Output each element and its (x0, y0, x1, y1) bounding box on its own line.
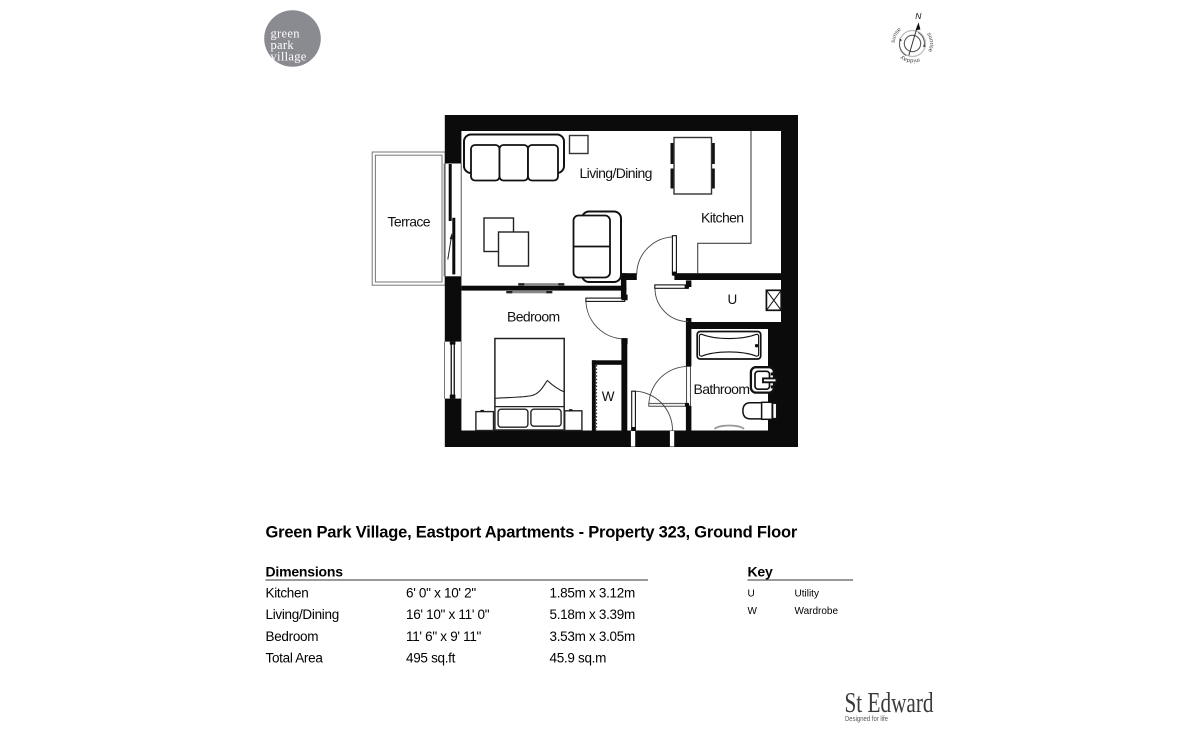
svg-text:11' 6" x 9' 11": 11' 6" x 9' 11" (406, 629, 482, 644)
svg-text:1.85m x 3.12m: 1.85m x 3.12m (550, 586, 635, 601)
svg-text:U: U (728, 292, 738, 307)
svg-text:Living/Dining: Living/Dining (266, 607, 339, 622)
svg-text:Dimensions: Dimensions (266, 563, 344, 579)
svg-text:45.9 sq.m: 45.9 sq.m (550, 651, 607, 666)
svg-text:W: W (748, 606, 758, 617)
svg-text:Living/Dining: Living/Dining (580, 165, 652, 181)
svg-text:W: W (602, 389, 615, 404)
svg-text:Designed for life: Designed for life (845, 716, 888, 723)
svg-text:Kitchen: Kitchen (266, 586, 309, 601)
svg-text:Kitchen: Kitchen (701, 209, 744, 225)
svg-text:Bedroom: Bedroom (507, 309, 560, 325)
svg-text:Wardrobe: Wardrobe (795, 606, 839, 617)
svg-text:village: village (271, 50, 307, 64)
svg-text:Utility: Utility (795, 589, 819, 600)
svg-text:3.53m x 3.05m: 3.53m x 3.05m (550, 629, 635, 644)
svg-text:5.18m x 3.39m: 5.18m x 3.39m (550, 607, 635, 622)
svg-text:16' 10" x 11' 0": 16' 10" x 11' 0" (406, 607, 490, 622)
svg-text:Terrace: Terrace (388, 213, 431, 229)
svg-text:6' 0" x 10' 2": 6' 0" x 10' 2" (406, 586, 476, 601)
svg-text:Bedroom: Bedroom (266, 629, 319, 644)
svg-text:U: U (748, 589, 755, 600)
svg-text:St Edward: St Edward (845, 688, 934, 719)
svg-text:Key: Key (748, 563, 773, 579)
svg-text:Total Area: Total Area (266, 651, 324, 666)
svg-text:Bathroom: Bathroom (694, 381, 750, 397)
svg-text:Green Park Village, Eastport A: Green Park Village, Eastport Apartments … (266, 523, 798, 541)
svg-text:N: N (915, 11, 922, 21)
svg-text:495 sq.ft: 495 sq.ft (406, 651, 456, 666)
